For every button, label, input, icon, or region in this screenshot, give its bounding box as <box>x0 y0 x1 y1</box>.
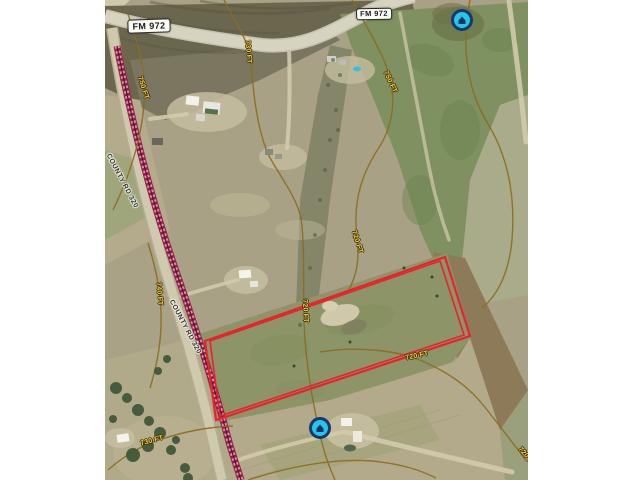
screenshot-stage: FM 972 FM 972 COUNTY RD 320 COUNTY RD 32… <box>0 0 640 480</box>
road-badge-fm972-east: FM 972 <box>356 8 392 21</box>
road-badge-fm972-west: FM 972 <box>127 18 170 33</box>
poi-marker-south[interactable] <box>311 419 330 438</box>
map-viewport[interactable]: FM 972 FM 972 COUNTY RD 320 COUNTY RD 32… <box>105 0 528 480</box>
letterbox-left <box>0 0 105 480</box>
satellite-map-canvas <box>105 0 528 480</box>
poi-marker-north[interactable] <box>453 11 472 30</box>
letterbox-right <box>528 0 640 480</box>
contour-label-720: 720 FT <box>301 299 309 323</box>
